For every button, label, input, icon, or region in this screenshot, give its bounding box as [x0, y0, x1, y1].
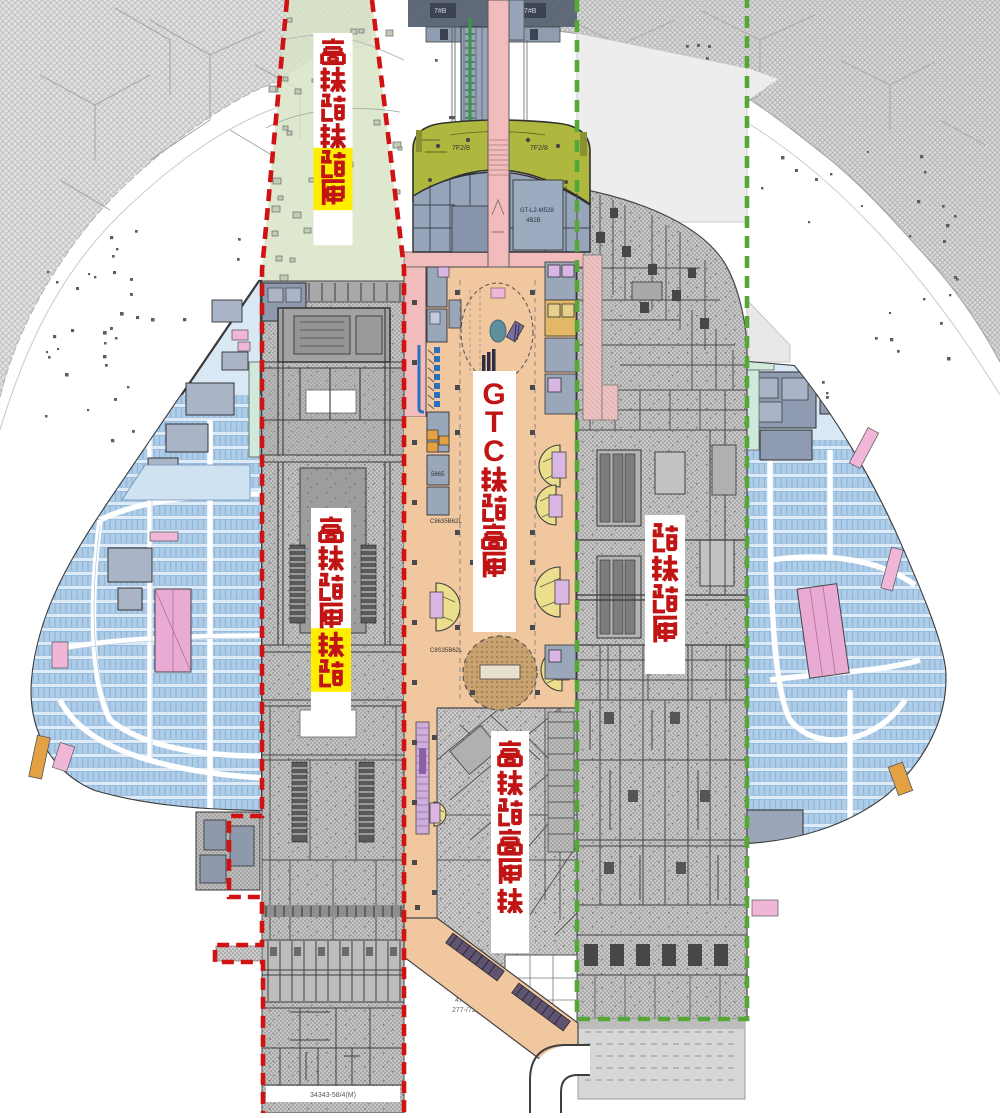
svg-text:5865: 5865: [431, 472, 445, 478]
svg-text:C: C: [483, 435, 505, 468]
svg-text:GT-L2-M528: GT-L2-M528: [520, 208, 554, 214]
svg-text:7F2/8: 7F2/8: [452, 145, 470, 152]
svg-text:34343-58/4(M): 34343-58/4(M): [310, 1092, 356, 1099]
svg-text:7#B: 7#B: [524, 8, 537, 15]
svg-text:C8S35B62L: C8S35B62L: [430, 648, 463, 654]
svg-text:4B2B: 4B2B: [526, 218, 541, 224]
svg-text:7F2/8: 7F2/8: [530, 145, 548, 152]
svg-text:7#B: 7#B: [434, 8, 447, 15]
svg-text:C8635B62L: C8635B62L: [430, 519, 462, 525]
